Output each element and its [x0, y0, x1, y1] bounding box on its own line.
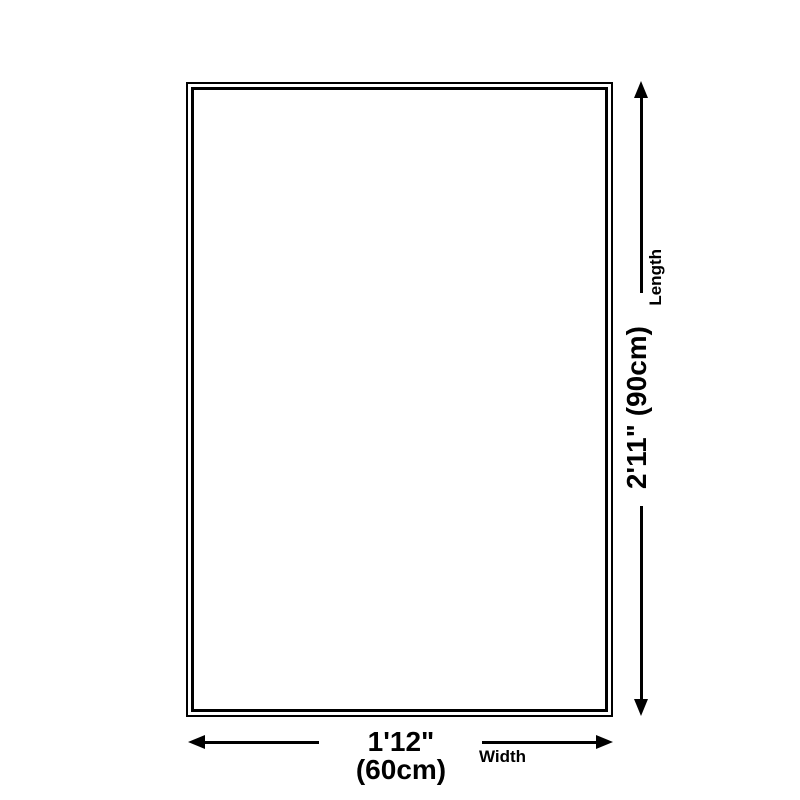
arrow-right-icon: [596, 735, 613, 749]
length-axis-label: Length: [647, 249, 664, 306]
length-arrow-bottom-segment: [640, 506, 643, 701]
width-arrow-left-segment: [203, 741, 319, 744]
size-diagram: Length 2'11" (90cm) 1'12" (60cm) Width: [0, 0, 800, 800]
length-arrow-top-segment: [640, 96, 643, 293]
width-axis-label: Width: [479, 748, 526, 765]
width-value-label: 1'12" (60cm): [320, 728, 482, 784]
arrow-down-icon: [634, 699, 648, 716]
product-outline-inner: [191, 87, 608, 712]
product-outline-outer: [186, 82, 613, 717]
length-value-label: 2'11" (90cm): [623, 326, 651, 489]
width-arrow-right-segment: [482, 741, 598, 744]
